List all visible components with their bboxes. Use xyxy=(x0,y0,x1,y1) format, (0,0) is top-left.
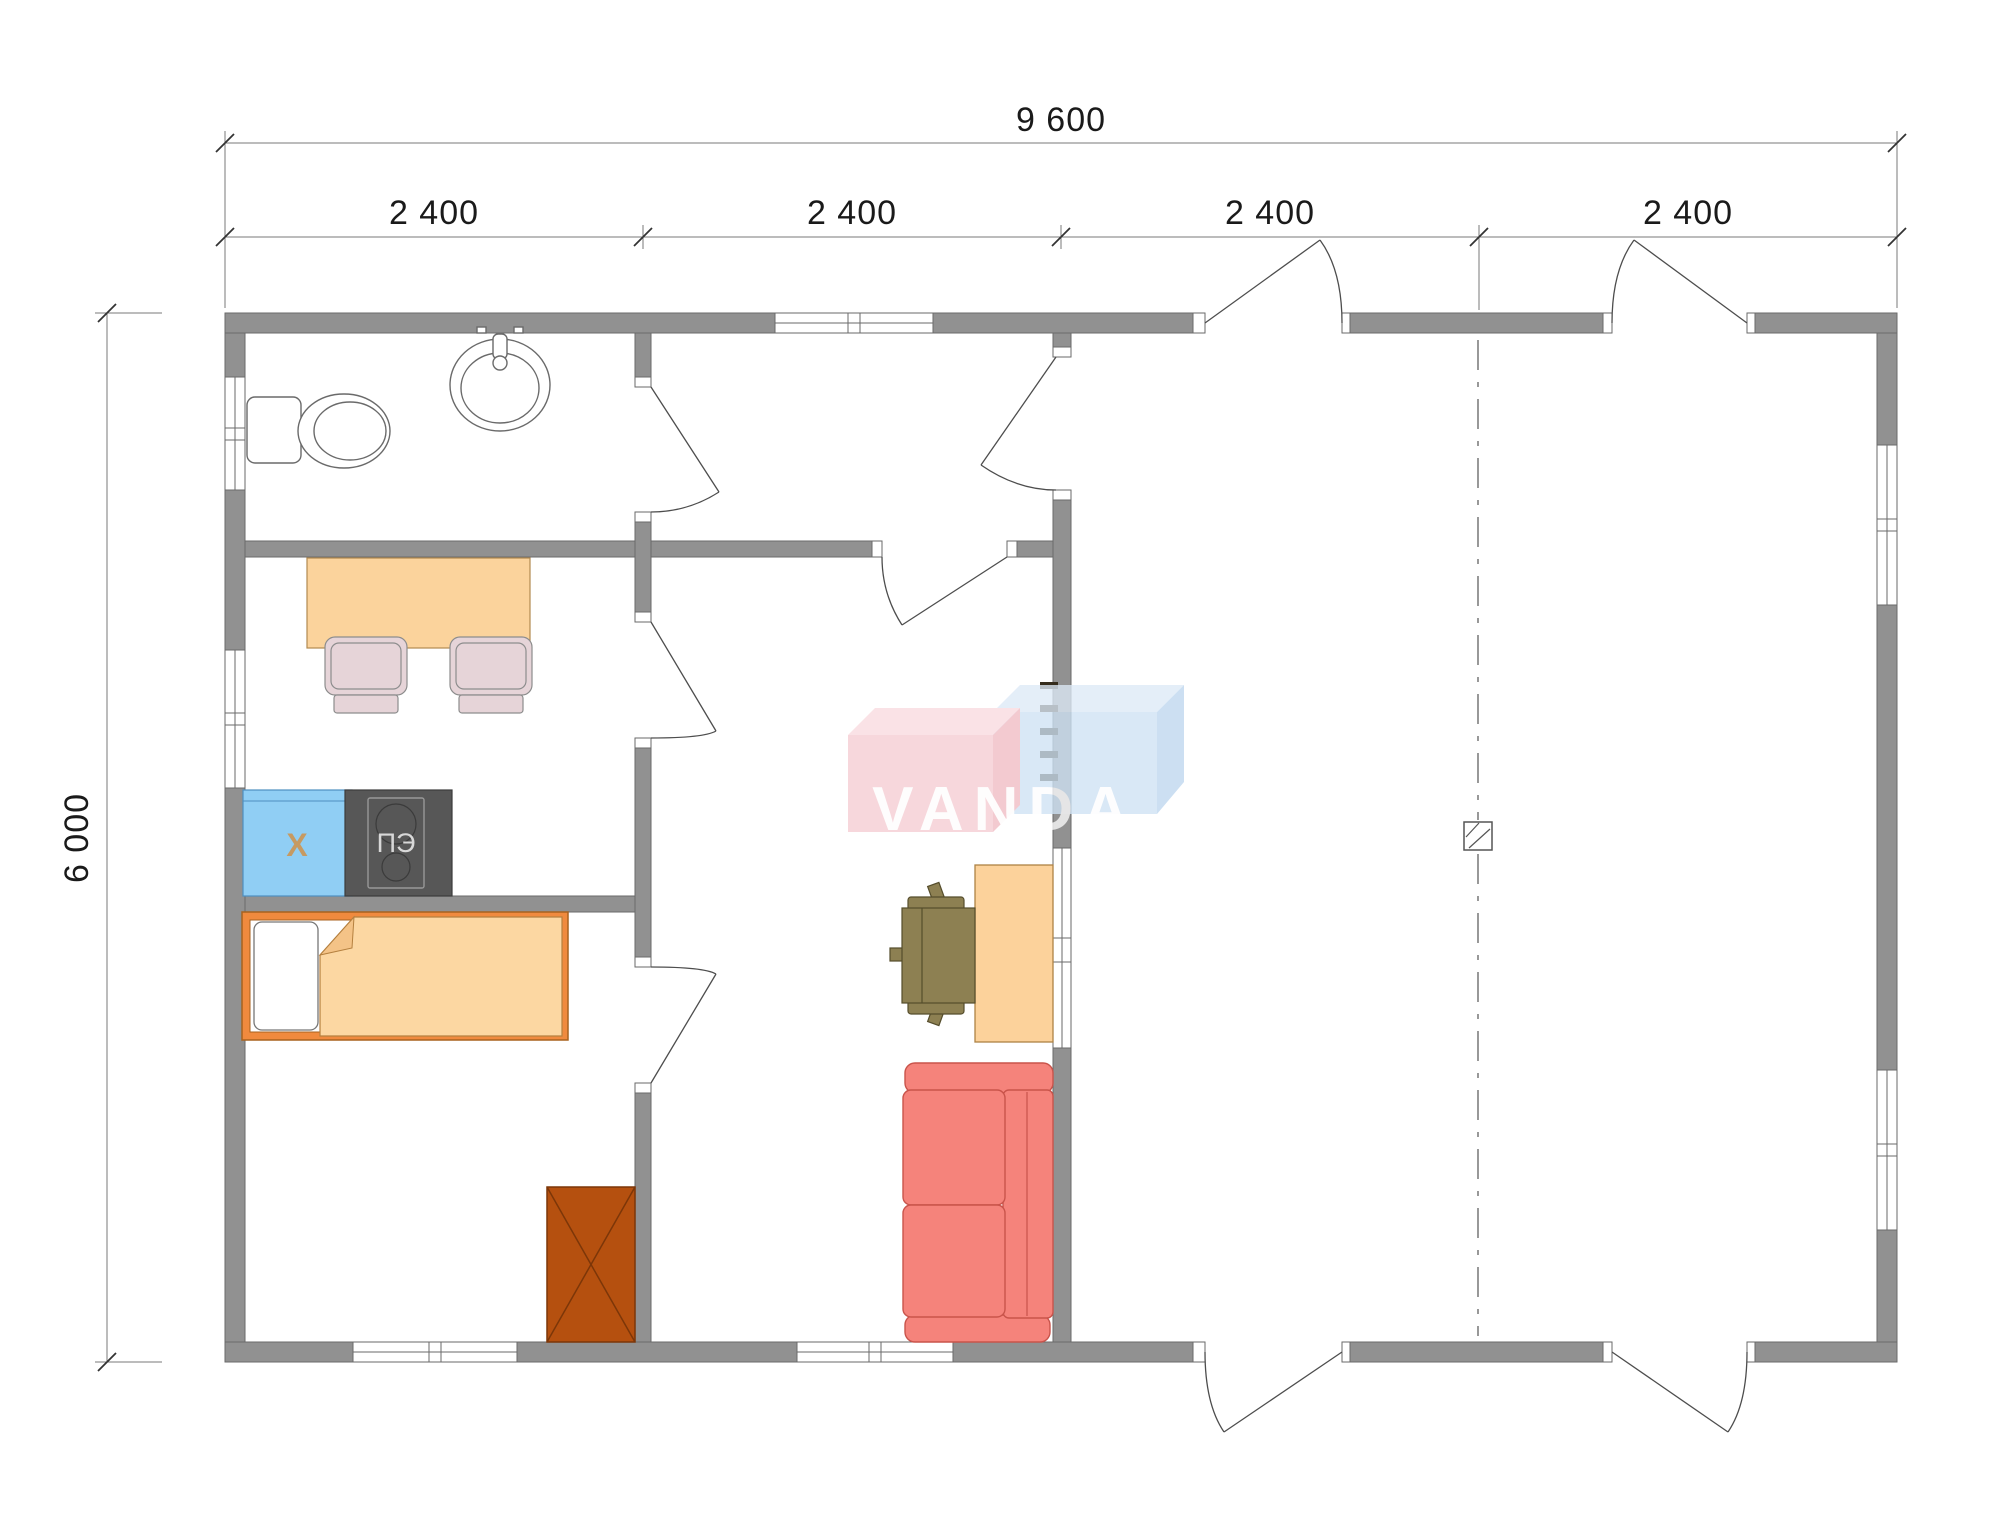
wall-segment xyxy=(635,748,651,957)
window xyxy=(1053,848,1071,1048)
desk xyxy=(975,865,1053,1042)
wall-segment xyxy=(933,313,1193,333)
bed xyxy=(242,912,568,1040)
doors xyxy=(651,240,1747,1432)
wall-segment xyxy=(225,490,245,650)
axis-group xyxy=(1464,340,1492,1336)
door-jamb xyxy=(635,1083,651,1093)
door-jamb xyxy=(1342,1342,1350,1362)
wardrobe xyxy=(547,1187,635,1342)
stove-label: ПЭ xyxy=(377,828,416,858)
office-chair xyxy=(890,882,975,1025)
sofa xyxy=(903,1063,1053,1342)
wall-segment xyxy=(1755,1342,1897,1362)
door-jamb xyxy=(635,612,651,622)
door-jambs xyxy=(635,313,1755,1362)
logo-pink-box-top xyxy=(848,708,1020,735)
wall-segment xyxy=(1877,605,1897,1070)
door-jamb xyxy=(1193,313,1205,333)
floor-plan-page: 9 600 2 400 2 400 2 400 2 400 6 000 xyxy=(0,0,2000,1524)
vanda-logo: VANDA xyxy=(848,685,1184,844)
window xyxy=(225,377,245,490)
door-jamb xyxy=(1603,1342,1612,1362)
window xyxy=(775,313,933,333)
wall-segment xyxy=(635,522,651,612)
door-jamb xyxy=(1053,490,1071,500)
wall-segment xyxy=(635,333,651,377)
wall-segment xyxy=(1350,313,1603,333)
window xyxy=(1877,1070,1897,1230)
door-swing xyxy=(1205,1352,1342,1432)
dim-bay-1: 2 400 xyxy=(389,194,479,232)
bedroom xyxy=(242,912,635,1342)
kitchen: Х ПЭ xyxy=(243,558,532,896)
toilet xyxy=(247,394,390,468)
wall-segment xyxy=(1877,1230,1897,1342)
chair xyxy=(450,637,532,713)
door-jamb xyxy=(1342,313,1350,333)
dim-bay-4: 2 400 xyxy=(1643,194,1733,232)
wall-segment xyxy=(225,313,775,333)
window xyxy=(353,1342,517,1362)
door-jamb xyxy=(872,541,882,557)
door-jamb xyxy=(635,512,651,522)
door-swing xyxy=(1612,240,1747,323)
window xyxy=(1877,445,1897,605)
wall-segment xyxy=(1755,313,1897,333)
wall-segment xyxy=(245,541,635,557)
fridge-label: Х xyxy=(286,827,308,863)
door-jamb xyxy=(1603,313,1612,333)
chair xyxy=(325,637,407,713)
stove: ПЭ xyxy=(345,790,452,896)
door-jamb xyxy=(635,738,651,748)
wall-segment xyxy=(1053,1048,1071,1342)
wall-segment xyxy=(953,1342,1193,1362)
door-jamb xyxy=(1747,1342,1755,1362)
wall-segment xyxy=(225,333,245,377)
door-swing xyxy=(651,387,719,512)
wall-segment xyxy=(225,1342,353,1362)
logo-blue-box-top xyxy=(993,685,1184,712)
door-jamb xyxy=(635,377,651,387)
door-swing xyxy=(651,967,716,1083)
door-jamb xyxy=(1053,347,1071,357)
floor-plan-canvas: 9 600 2 400 2 400 2 400 2 400 6 000 xyxy=(0,0,2000,1524)
door-jamb xyxy=(635,957,651,967)
wall-segment xyxy=(635,1093,651,1342)
wall-segment xyxy=(225,788,245,1342)
door-swing xyxy=(651,622,716,738)
door-jamb xyxy=(1007,541,1017,557)
window xyxy=(797,1342,953,1362)
vanda-logo-text: VANDA xyxy=(872,775,1138,844)
door-jamb xyxy=(1193,1342,1205,1362)
window xyxy=(225,650,245,788)
door-jamb xyxy=(1747,313,1755,333)
dim-bay-3: 2 400 xyxy=(1225,194,1315,232)
wall-segment xyxy=(1017,541,1053,557)
bathroom xyxy=(247,327,550,468)
wall-segment xyxy=(651,541,872,557)
wall-segment xyxy=(245,896,635,912)
wall-segment xyxy=(1053,333,1071,347)
wall-segment xyxy=(517,1342,797,1362)
door-swing xyxy=(981,357,1056,490)
door-swing xyxy=(882,557,1007,625)
door-swing xyxy=(1612,1352,1747,1432)
dim-height: 6 000 xyxy=(58,793,96,883)
wall-segment xyxy=(1350,1342,1603,1362)
dining-table xyxy=(307,558,530,648)
door-swing xyxy=(1205,240,1342,323)
fridge: Х xyxy=(243,790,352,896)
dim-total-width: 9 600 xyxy=(1016,101,1106,139)
column-marker xyxy=(1464,822,1492,850)
dim-bay-2: 2 400 xyxy=(807,194,897,232)
wall-segment xyxy=(1877,333,1897,445)
sink xyxy=(450,327,550,431)
